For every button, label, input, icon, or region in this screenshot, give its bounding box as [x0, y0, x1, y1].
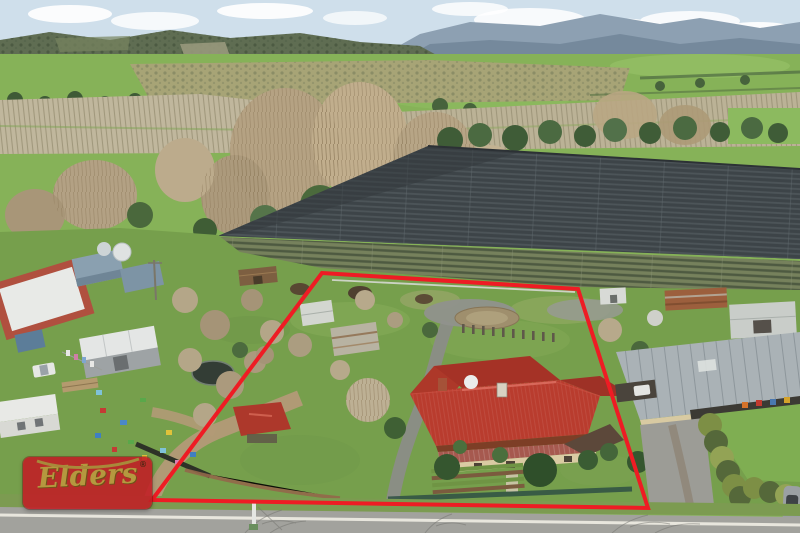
- greenhouse: [300, 300, 335, 326]
- front-path: [506, 474, 518, 492]
- chimney: [497, 383, 507, 397]
- brick-chimney: [438, 378, 447, 391]
- round-tank: [647, 310, 663, 326]
- skylight: [697, 359, 716, 372]
- elders-logo-watermark: Elders ®: [23, 457, 152, 509]
- water-tank: [113, 243, 131, 261]
- satellite-dish: [464, 375, 478, 389]
- photo-canvas: [0, 0, 800, 533]
- aerial-property-photo: Elders ®: [0, 0, 800, 533]
- logo-underline-swash: [23, 457, 152, 471]
- water-tank-2: [97, 242, 111, 256]
